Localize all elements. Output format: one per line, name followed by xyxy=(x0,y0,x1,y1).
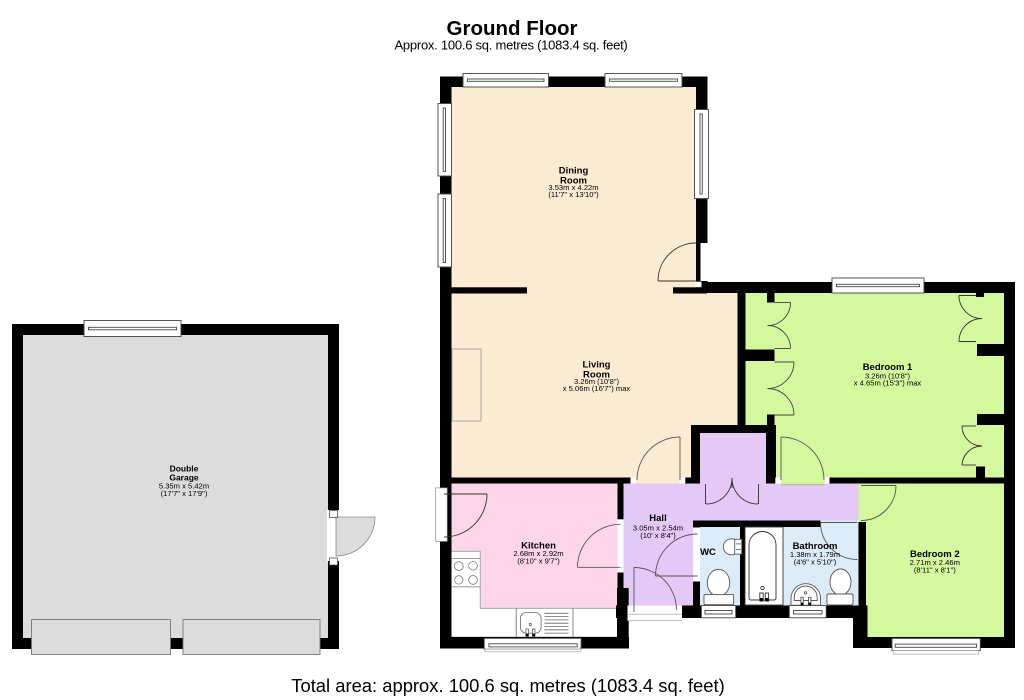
svg-text:x 4.65m (15'3") max: x 4.65m (15'3") max xyxy=(854,379,922,388)
svg-text:(4'6" x 5'10"): (4'6" x 5'10") xyxy=(794,558,837,567)
svg-text:WC: WC xyxy=(700,547,716,558)
svg-text:(11'7" x 13'10"): (11'7" x 13'10") xyxy=(548,190,599,199)
svg-text:(8'11" x 8'1"): (8'11" x 8'1") xyxy=(914,566,956,575)
svg-text:x 5.06m (16'7") max: x 5.06m (16'7") max xyxy=(563,384,631,393)
svg-text:Hall: Hall xyxy=(649,513,666,524)
svg-text:Approx. 100.6 sq. metres (1083: Approx. 100.6 sq. metres (1083.4 sq. fee… xyxy=(394,38,627,53)
svg-text:Total area: approx. 100.6 sq.: Total area: approx. 100.6 sq. metres (10… xyxy=(291,675,724,696)
svg-text:(17'7" x 17'9"): (17'7" x 17'9") xyxy=(161,489,208,498)
svg-text:(10' x 8'4"): (10' x 8'4") xyxy=(640,531,676,540)
svg-text:(8'10" x 9'7"): (8'10" x 9'7") xyxy=(517,557,560,566)
